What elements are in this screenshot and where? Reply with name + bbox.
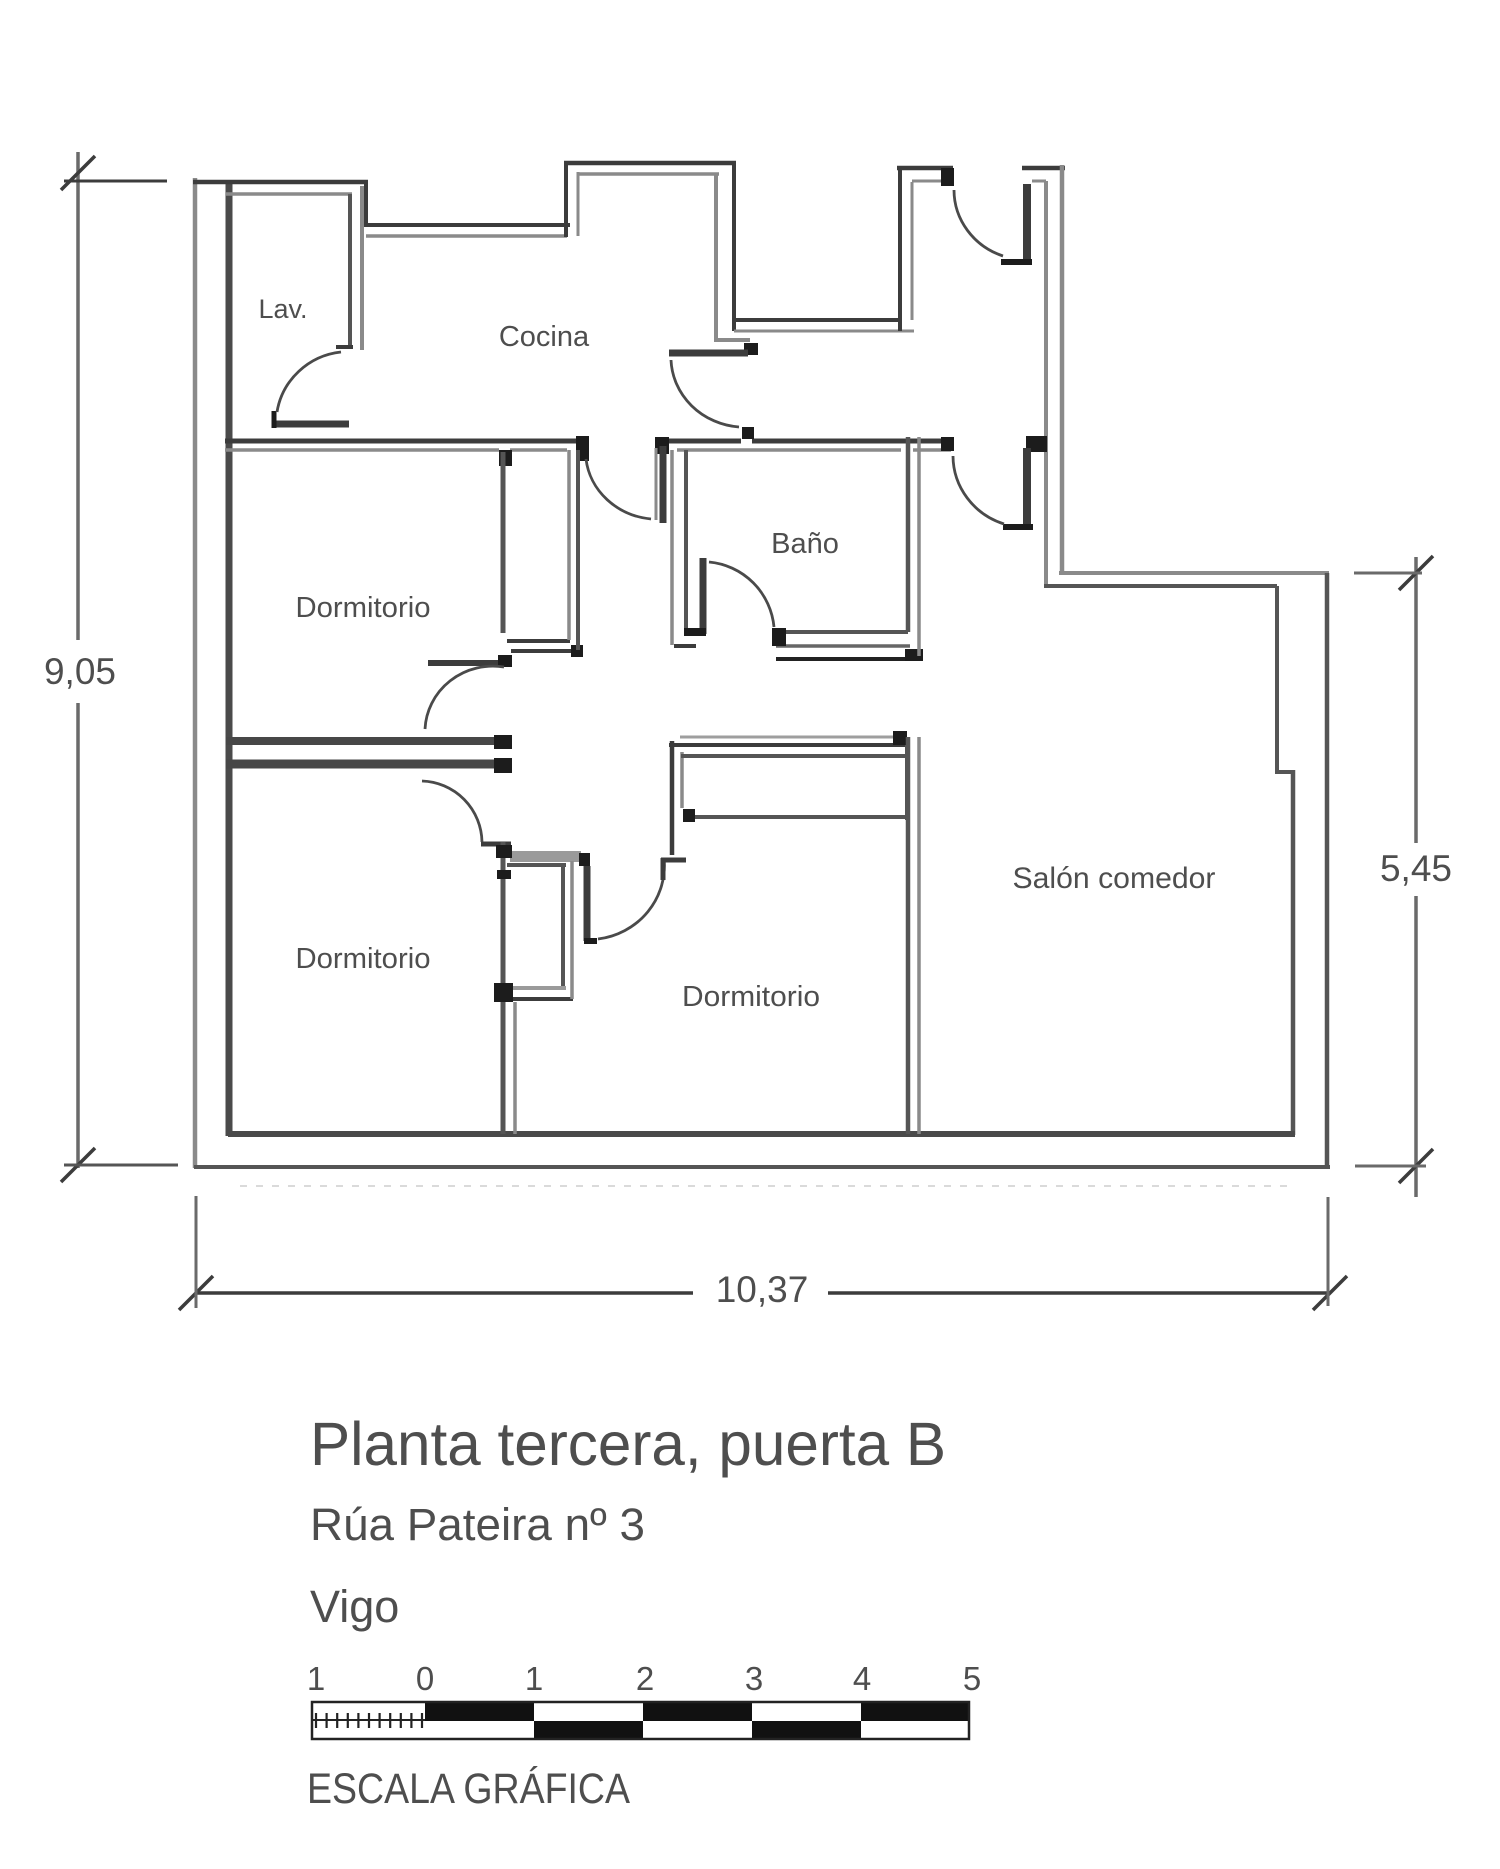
svg-text:9,05: 9,05 <box>44 651 116 692</box>
svg-text:ESCALA GRÁFICA: ESCALA GRÁFICA <box>307 1765 630 1813</box>
svg-text:2: 2 <box>636 1660 654 1697</box>
svg-text:5: 5 <box>963 1660 981 1697</box>
svg-text:4: 4 <box>853 1660 871 1697</box>
svg-text:5,45: 5,45 <box>1380 848 1452 889</box>
svg-text:Dormitorio: Dormitorio <box>682 981 820 1013</box>
svg-text:Baño: Baño <box>771 528 839 560</box>
svg-text:Lav.: Lav. <box>258 294 307 324</box>
svg-text:Vigo: Vigo <box>310 1581 399 1632</box>
svg-text:Dormitorio: Dormitorio <box>296 592 431 624</box>
svg-text:Planta tercera, puerta B: Planta tercera, puerta B <box>310 1410 946 1478</box>
svg-text:Dormitorio: Dormitorio <box>296 943 431 975</box>
svg-text:10,37: 10,37 <box>716 1269 809 1310</box>
svg-text:1: 1 <box>307 1660 325 1697</box>
svg-text:Rúa Pateira nº 3: Rúa Pateira nº 3 <box>310 1499 645 1550</box>
svg-text:Salón comedor: Salón comedor <box>1013 862 1216 895</box>
svg-text:1: 1 <box>525 1660 543 1697</box>
svg-text:3: 3 <box>745 1660 763 1697</box>
svg-text:0: 0 <box>416 1660 434 1697</box>
svg-text:Cocina: Cocina <box>499 321 590 353</box>
